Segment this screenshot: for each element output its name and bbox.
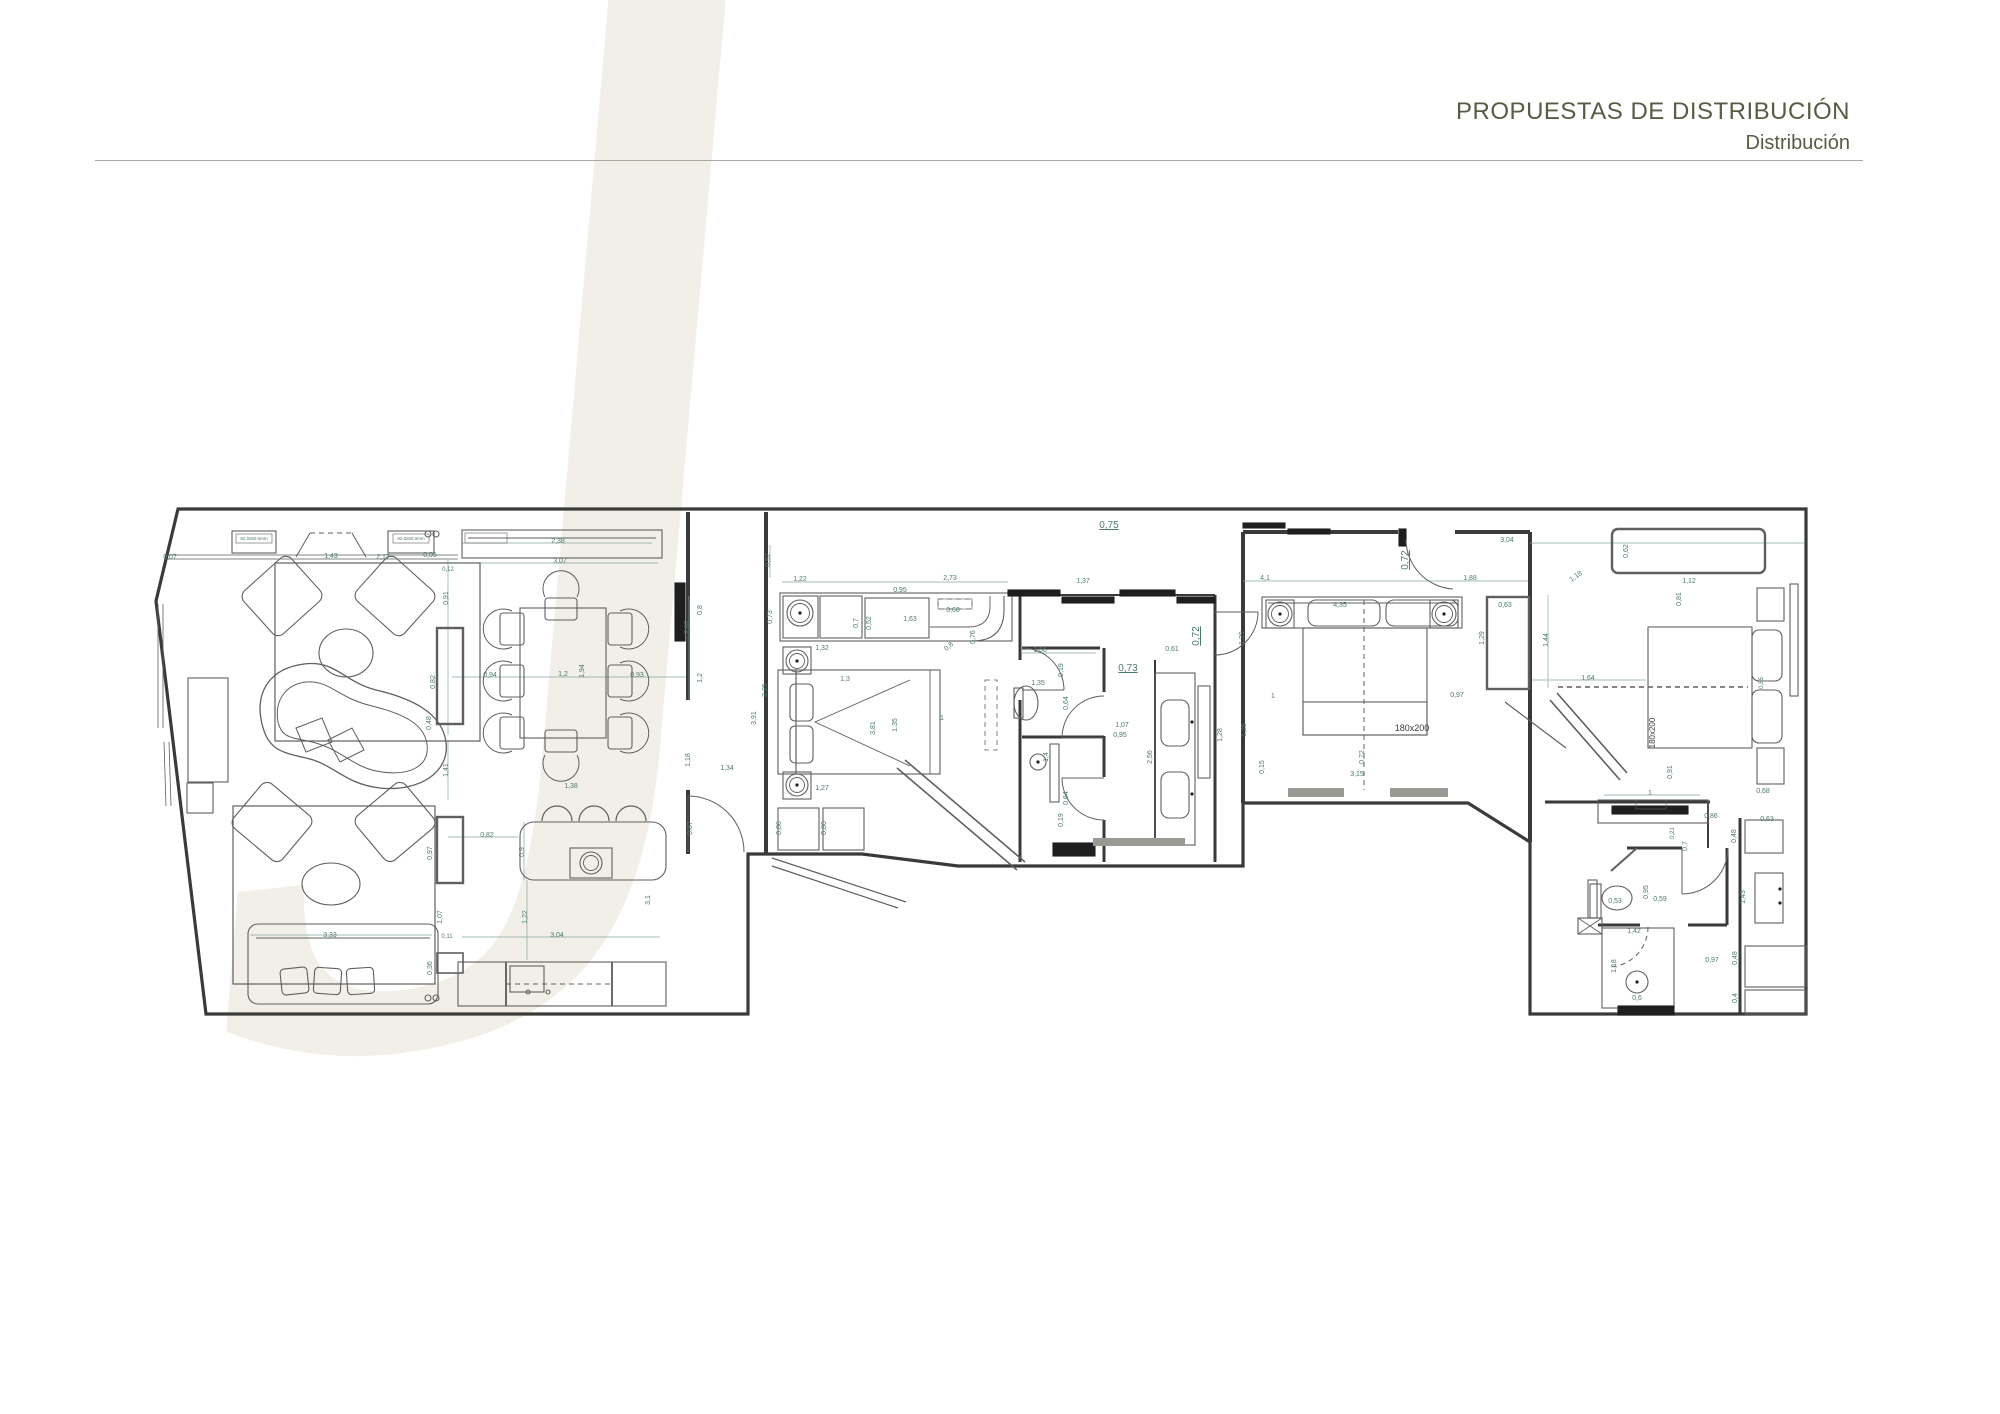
dimension-label: 1,18 [685, 753, 692, 767]
dimension-label: 0,97 [427, 846, 434, 860]
dimension-label: 0,97 [1705, 957, 1719, 964]
faucet [1778, 887, 1781, 890]
cabinet [1745, 946, 1806, 987]
dimension-label: 1,38 [564, 783, 578, 790]
header-rule [95, 160, 1863, 161]
faucet [1190, 792, 1193, 795]
door [688, 796, 744, 852]
dimension-label: 0,87 [687, 821, 694, 835]
sliding-door [1120, 590, 1175, 596]
dimension-label: 1 [1271, 693, 1275, 700]
knob [546, 990, 550, 994]
dimension-label: 0,36 [427, 961, 434, 975]
dimension-label: 3,91 [751, 711, 758, 725]
dimension-label: 1,18 [1611, 959, 1618, 973]
dimension-label: 0,72 [1400, 550, 1411, 570]
dimension-label: 4,35 [1333, 602, 1347, 609]
dimension-label: 0,9 [519, 847, 526, 857]
door [1682, 848, 1728, 894]
page: J PROPUESTAS DE DISTRIBUCIÓN Distribució… [0, 0, 2000, 1414]
sliding-door [1177, 597, 1215, 603]
dimension-label: 1,07 [437, 910, 444, 924]
dimension-label: 1,2 [697, 673, 704, 683]
window [1588, 880, 1597, 918]
dimension-label: 0,95 [1643, 885, 1650, 899]
dimension-label: 2,73 [943, 575, 957, 582]
lamp-table [1278, 612, 1281, 615]
corner-wall [1611, 848, 1637, 871]
dimension-label: 1,2 [558, 671, 568, 678]
dimension-label: 1 [940, 715, 944, 722]
sofa [248, 924, 438, 1004]
nightstand [1757, 748, 1784, 784]
floor-plan: 0,071,432,170,050,120,910,820,481,412,38… [0, 0, 2000, 1414]
door [1215, 612, 1258, 655]
island [520, 822, 666, 880]
dimension-label: 1,07 [1115, 722, 1129, 729]
wardrobe [1487, 597, 1529, 689]
diagonal-wall [897, 760, 1025, 870]
dimension-label: 0,85 [1759, 677, 1765, 689]
cabinet [823, 808, 864, 850]
dimension-label: 0,4 [1732, 993, 1739, 1003]
pillow [280, 967, 310, 996]
sliding-door [1243, 523, 1285, 528]
vanity [1755, 873, 1783, 923]
sink [1161, 700, 1189, 746]
dimension-label: 0,21 [1670, 827, 1676, 839]
dimension-label: 0,91 [1667, 765, 1674, 779]
dimension-label: 3,15 [1350, 771, 1364, 778]
dimension-label: 1,42 [1627, 928, 1641, 935]
dimension-label: 0,12 [442, 567, 454, 573]
dimension-label: 0,48 [426, 716, 433, 730]
desk [1612, 529, 1765, 573]
pillow [313, 967, 342, 995]
chair-back [620, 609, 649, 649]
armchair [352, 779, 438, 865]
side-table [795, 783, 798, 786]
dimension-label: 1,22 [793, 576, 807, 583]
faucet [1778, 901, 1781, 904]
dimension-label: 0,94 [483, 672, 497, 679]
dimension-label: 0,53 [1608, 898, 1622, 905]
bench [1618, 1006, 1674, 1015]
dimension-label: 0,86 [776, 821, 783, 835]
headboard [778, 670, 796, 774]
chair [608, 665, 632, 697]
dimension-label: 0,72 [1359, 750, 1366, 764]
dimension-label: 0,75 [1099, 520, 1119, 531]
armchair [229, 779, 315, 865]
dimension-label: 0,86 [1704, 813, 1718, 820]
dimension-label: 3,33 [323, 932, 337, 939]
page-subtitle: Distribución [1456, 132, 1850, 155]
dimension-label: 0,8 [697, 605, 704, 615]
chair-back [543, 755, 579, 781]
rug [233, 806, 435, 984]
console [437, 628, 463, 724]
dimension-label: 1,41 [443, 763, 450, 777]
chair-back [483, 661, 512, 701]
dimension-label: 2,56 [1147, 750, 1154, 764]
dimension-label: 0,7 [853, 618, 860, 628]
dimension-label: 1,28 [1241, 723, 1248, 737]
dimension-label: 1,43 [1740, 890, 1747, 904]
cabinet [778, 808, 819, 850]
dimension-label: 0,86 [821, 821, 828, 835]
nightstand [1757, 588, 1784, 621]
pillow [790, 726, 813, 763]
dimension-label: 1,18 [1569, 570, 1584, 584]
dimension-label: 0,91 [443, 591, 450, 605]
pillow [346, 967, 375, 995]
lamp-table [1442, 612, 1445, 615]
dimension-label: 0,68 [946, 607, 960, 614]
dimension-label: 1,64 [1581, 675, 1595, 682]
dimension-label: 3,81 [870, 721, 877, 735]
dimension-label: 1,63 [903, 616, 917, 623]
page-title: PROPUESTAS DE DISTRIBUCIÓN [1456, 98, 1850, 126]
dimension-label: 0,81 [1676, 592, 1683, 606]
dimension-label: 3,25 [762, 683, 769, 697]
pillow [1752, 690, 1782, 743]
dimension-label: 0,73 [767, 610, 774, 624]
sink [1161, 772, 1189, 818]
faucet [1190, 720, 1193, 723]
counter-curve [930, 596, 1004, 641]
dimension-label: 1,4 [1043, 752, 1050, 762]
cabinet [1050, 744, 1059, 802]
dimension-label: 0,05 [423, 552, 437, 559]
sliding-door [1062, 597, 1114, 603]
sideboard [188, 678, 228, 782]
sliding-door [1008, 590, 1060, 596]
chair [545, 598, 577, 620]
dimension-label: 1,3 [840, 676, 850, 683]
dimension-label: 1,43 [324, 553, 338, 560]
socket [425, 995, 431, 1001]
curved-sofa [260, 664, 446, 789]
counter-module [510, 966, 544, 992]
chair-back [483, 609, 512, 649]
dimension-label: 3,07 [553, 558, 567, 565]
dimension-label: 3,04 [1500, 537, 1514, 544]
armchair [239, 553, 325, 639]
shelf-bar [1612, 806, 1688, 814]
dimension-label: 0,48 [1732, 951, 1739, 965]
dimension-label: 0,19 [1058, 663, 1065, 677]
dimension-label: 180x200 [1395, 723, 1430, 733]
console [437, 817, 463, 883]
kitchen-counter [780, 593, 1012, 641]
door-leaf [1399, 529, 1406, 546]
dimension-label: 2,38 [551, 538, 565, 545]
dimension-label: 82.0x60.0mm [240, 536, 268, 541]
window-sill [165, 555, 458, 559]
dimension-label: 2,82 [684, 620, 691, 634]
bed [796, 670, 940, 774]
toilet-bowl [1014, 686, 1038, 720]
dimension-label: 0,82 [480, 832, 494, 839]
dimension-label: 1,12 [1682, 578, 1696, 585]
dimension-label: 0,8 [943, 641, 955, 653]
bed [1648, 627, 1752, 748]
diagonal-wall [772, 858, 906, 908]
dimension-label: 0,82 [430, 675, 437, 689]
diagonal-wall [1550, 693, 1627, 780]
chair [608, 717, 632, 749]
dimension-label: 1,94 [579, 664, 586, 678]
dimension-label: 4,1 [1260, 575, 1270, 582]
dimension-label: 0,07 [163, 554, 177, 561]
door [1406, 540, 1453, 589]
side-table [795, 659, 798, 662]
dimension-label: 1 [1648, 790, 1652, 797]
dimension-label: 0,64 [1063, 791, 1070, 805]
dimension-label: 1,44 [1543, 633, 1550, 647]
chair-back [483, 713, 512, 753]
dimension-label: 1,27 [815, 785, 829, 792]
dimension-label: 0,59 [1653, 896, 1667, 903]
counter-curve [930, 596, 990, 627]
dimension-label: 1,88 [1463, 575, 1477, 582]
rug [275, 563, 480, 741]
toilet-tank [1590, 884, 1601, 918]
dimension-label: 1,28 [1217, 728, 1224, 742]
dimension-label: 82.0x60.0mm [397, 536, 425, 541]
cabinet [187, 783, 213, 813]
coffee-table [319, 629, 373, 677]
dimension-label: 0,64 [1063, 696, 1070, 710]
pillow [790, 684, 813, 721]
dimension-label: 1,29 [1479, 631, 1486, 645]
dimension-label: 3,1 [645, 895, 652, 905]
dimension-label: 0,73 [1118, 663, 1138, 674]
pillow [1752, 630, 1782, 681]
coffee-table [302, 863, 360, 905]
dimension-label: 0,62 [1623, 544, 1630, 558]
vanity [1155, 673, 1195, 845]
dimension-label: 0,48 [1731, 829, 1738, 843]
dimension-label: 1,22 [522, 910, 529, 924]
dimension-label: 0,95 [893, 587, 907, 594]
dimension-label: 0,72 [1191, 626, 1202, 646]
bed [1303, 628, 1427, 735]
dimension-label: 2,17 [376, 554, 390, 561]
washer [798, 611, 801, 614]
upper-cabinet [985, 680, 997, 750]
dimension-label: 1,66 [1033, 647, 1047, 654]
washbasin [1036, 760, 1039, 763]
dimension-label: 0,52 [866, 616, 873, 630]
threshold [1093, 838, 1185, 846]
closet [1198, 686, 1210, 778]
dimension-label: 0,68 [1756, 788, 1770, 795]
shower-drain [1635, 980, 1638, 983]
dimension-label: 0,97 [1450, 692, 1464, 699]
chair-back [543, 571, 579, 597]
dimension-label: 1,35 [1031, 680, 1045, 687]
chair-back [620, 661, 649, 701]
header: PROPUESTAS DE DISTRIBUCIÓN Distribución [1456, 98, 1850, 155]
dimension-label: 1,34 [720, 765, 734, 772]
dimension-label: 0,95 [1113, 732, 1127, 739]
window-sill [1288, 788, 1344, 797]
dimension-label: 0,61 [1165, 646, 1179, 653]
dimension-label: 3,04 [550, 932, 564, 939]
sliding-door [1288, 529, 1330, 534]
chair [545, 730, 577, 752]
curved-sofa [277, 682, 427, 773]
dimension-label: 0,7 [1682, 841, 1689, 851]
dimension-label: 1,35 [892, 718, 899, 732]
appliance [820, 596, 862, 638]
hob [584, 856, 599, 871]
dimension-label: 0,19 [1058, 813, 1065, 827]
cabinet [865, 598, 929, 638]
armchair [352, 553, 438, 639]
dimension-label: 1,32 [815, 645, 829, 652]
dimension-label: 0,92 [765, 553, 772, 567]
chair-back [620, 713, 649, 753]
dimension-label: 0,11 [441, 934, 453, 940]
dimension-label: 0,76 [970, 630, 977, 644]
stool [579, 806, 609, 821]
dimension-label: 1,37 [1076, 578, 1090, 585]
dimension-label: 0,63 [1498, 602, 1512, 609]
stool [542, 806, 572, 821]
window-sill [1390, 788, 1448, 797]
cabinet [1745, 820, 1783, 853]
dimension-label: 0,15 [1259, 760, 1266, 774]
console [437, 953, 463, 973]
dimension-label: 1,29 [1239, 631, 1246, 645]
chair [608, 613, 632, 645]
stool [616, 806, 646, 821]
cabinet [1745, 990, 1806, 1014]
dimension-label: 0,6 [1632, 995, 1642, 1002]
bench [1053, 843, 1095, 856]
dimension-label: 0,93 [630, 672, 644, 679]
dimension-label: 0,63 [1760, 816, 1774, 823]
dimension-label: 180x200 [1648, 717, 1657, 748]
radiator [1790, 584, 1798, 696]
